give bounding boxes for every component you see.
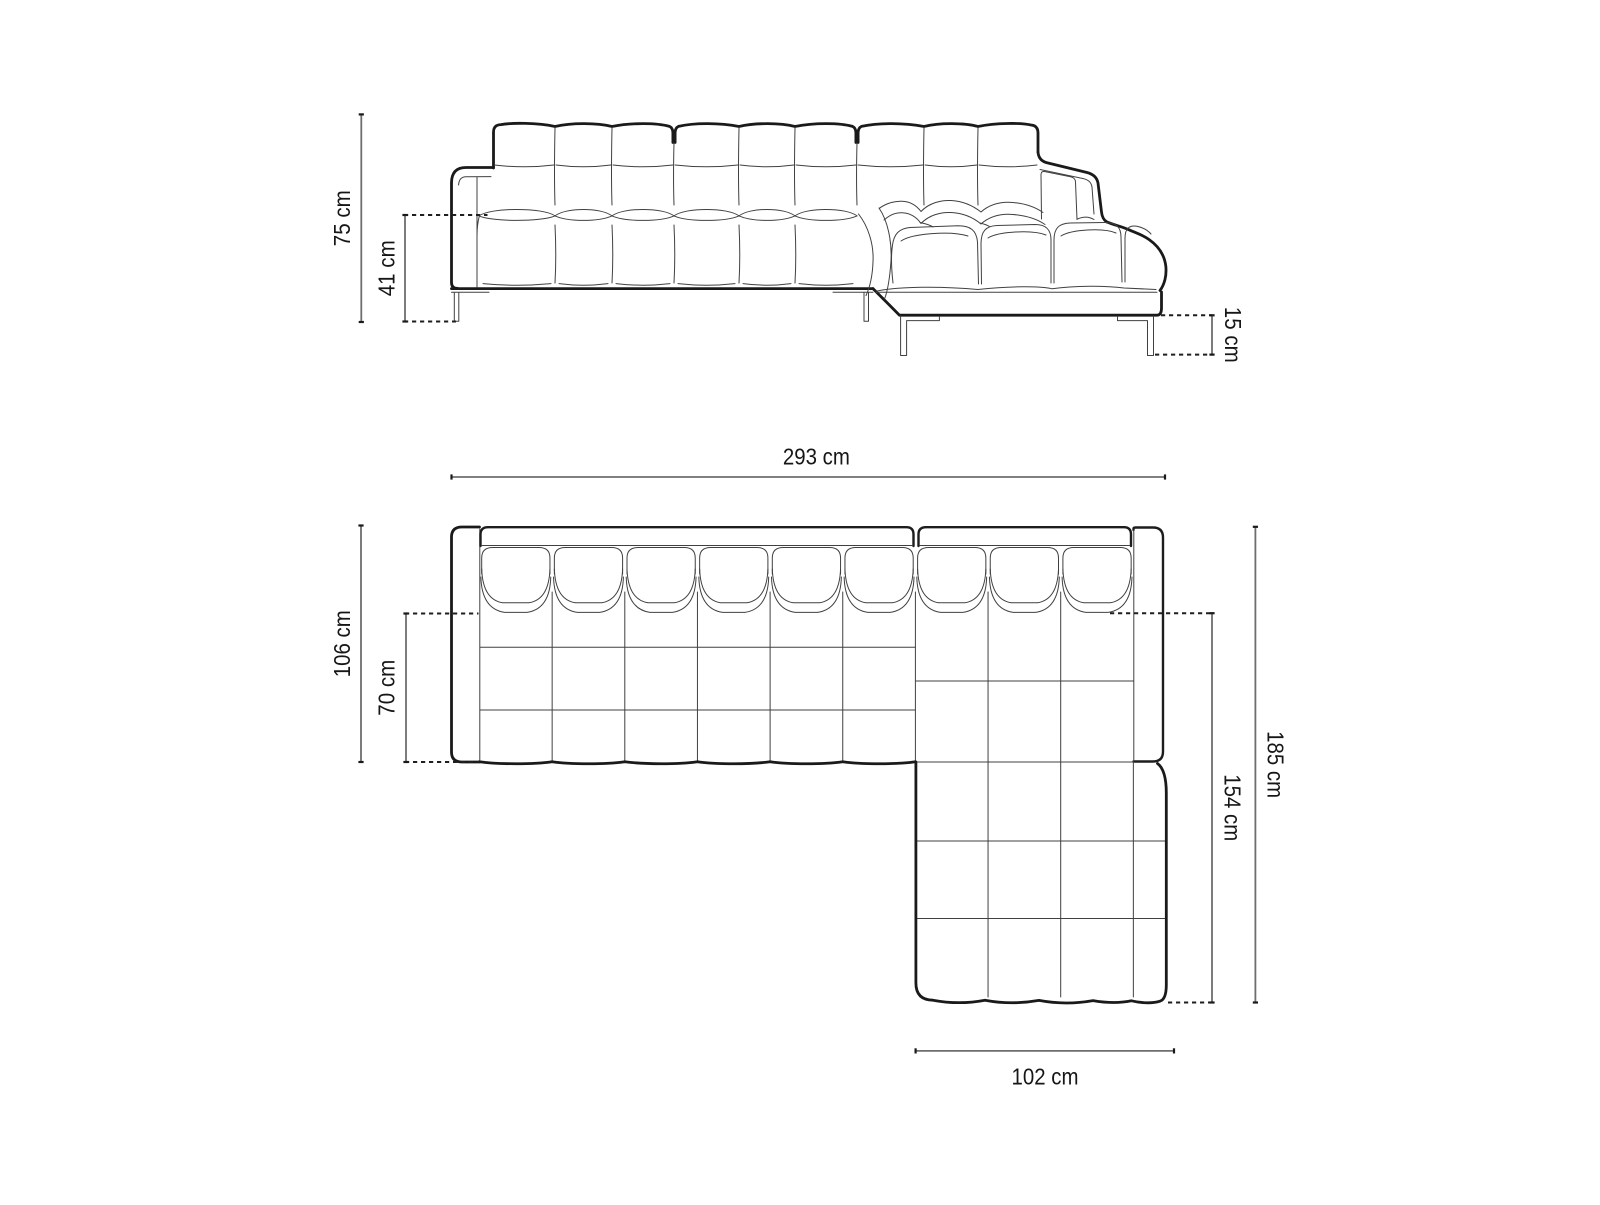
svg-text:106 cm: 106 cm xyxy=(329,610,355,677)
svg-text:102 cm: 102 cm xyxy=(1012,1063,1079,1089)
svg-text:15 cm: 15 cm xyxy=(1220,307,1246,363)
svg-text:185 cm: 185 cm xyxy=(1263,731,1289,798)
svg-text:75 cm: 75 cm xyxy=(329,190,355,246)
svg-text:154 cm: 154 cm xyxy=(1219,774,1245,841)
svg-text:41 cm: 41 cm xyxy=(374,240,400,296)
svg-text:70 cm: 70 cm xyxy=(374,660,400,716)
svg-text:293 cm: 293 cm xyxy=(783,443,850,469)
